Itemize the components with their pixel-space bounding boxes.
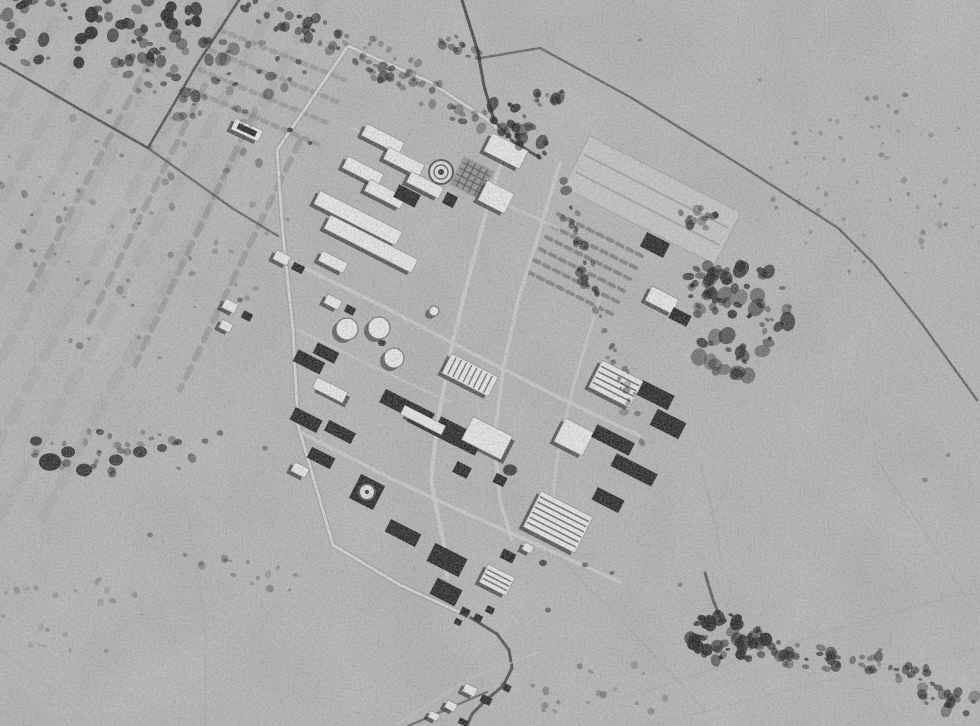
film-grain-dark <box>0 0 980 726</box>
satellite-photo <box>0 0 980 726</box>
photo-canvas <box>0 0 980 726</box>
